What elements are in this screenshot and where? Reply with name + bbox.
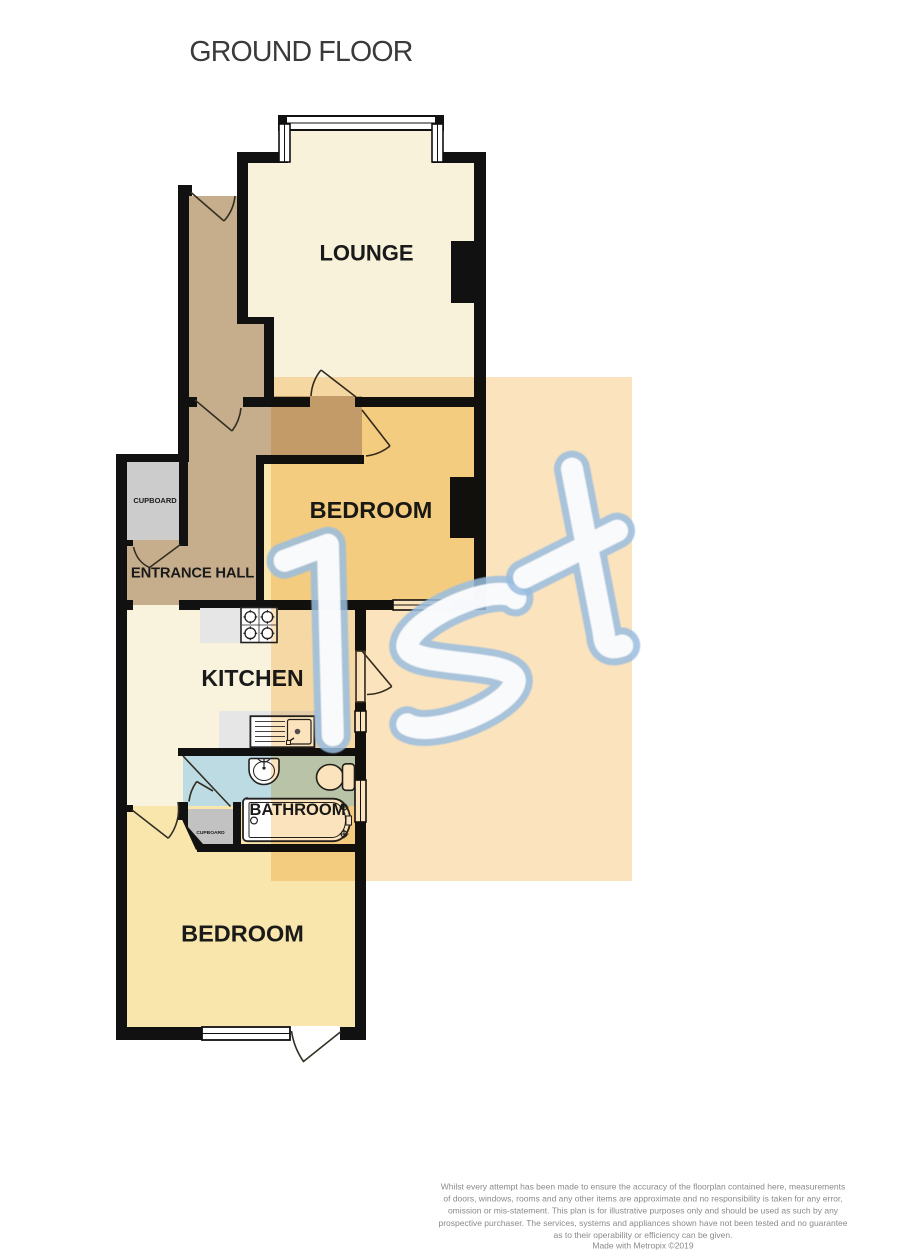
svg-text:of doors, windows, rooms and a: of doors, windows, rooms and any other i… (443, 1194, 842, 1204)
svg-text:omission or mis-statement. Thi: omission or mis-statement. This plan is … (448, 1206, 839, 1216)
svg-text:ENTRANCE HALL: ENTRANCE HALL (131, 566, 254, 582)
svg-text:BEDROOM: BEDROOM (181, 921, 304, 947)
svg-text:as to their operability or eff: as to their operability or efficiency ca… (554, 1230, 733, 1240)
svg-text:LOUNGE: LOUNGE (319, 241, 413, 266)
svg-text:CUPBOARD: CUPBOARD (196, 830, 225, 836)
svg-text:CUPBOARD: CUPBOARD (133, 496, 177, 505)
svg-text:prospective purchaser. The ser: prospective purchaser. The services, sys… (438, 1218, 847, 1228)
svg-text:Made with Metropix ©2019: Made with Metropix ©2019 (592, 1241, 694, 1251)
svg-text:GROUND FLOOR: GROUND FLOOR (189, 36, 412, 68)
svg-text:Whilst every attempt has been: Whilst every attempt has been made to en… (441, 1182, 845, 1192)
